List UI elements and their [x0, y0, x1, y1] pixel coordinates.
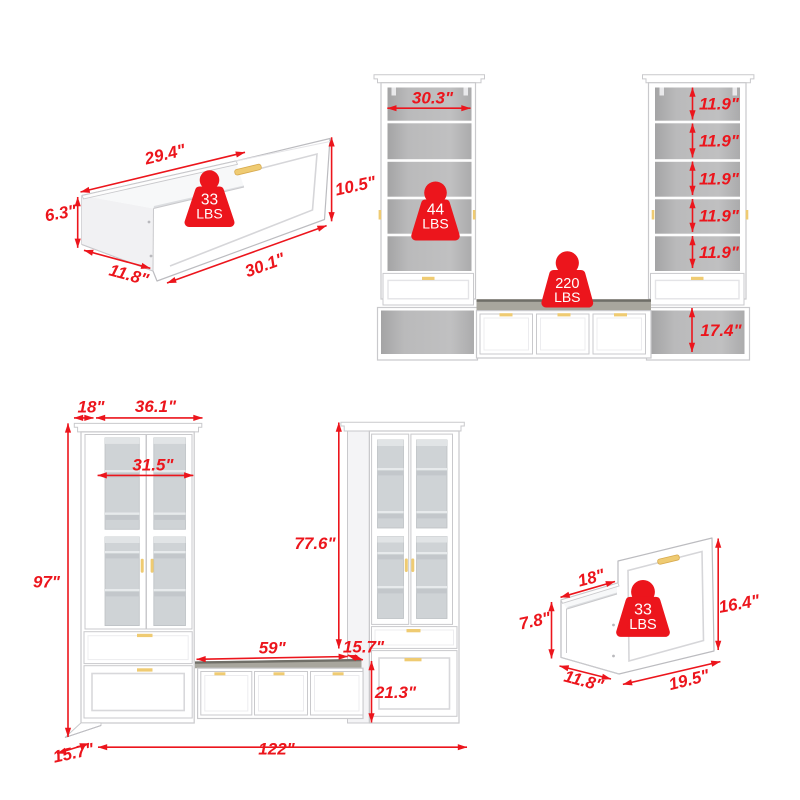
- svg-text:LBS: LBS: [422, 216, 448, 232]
- svg-text:LBS: LBS: [629, 617, 656, 633]
- svg-text:11.9": 11.9": [699, 95, 740, 114]
- svg-text:30.3": 30.3": [412, 89, 454, 108]
- svg-text:11.9": 11.9": [699, 243, 740, 262]
- svg-text:15.7": 15.7": [343, 638, 385, 657]
- svg-text:18": 18": [78, 398, 106, 417]
- svg-text:97": 97": [33, 573, 61, 592]
- svg-text:31.5": 31.5": [132, 456, 174, 475]
- svg-text:17.4": 17.4": [700, 321, 742, 340]
- svg-text:LBS: LBS: [554, 289, 580, 305]
- svg-text:11.9": 11.9": [699, 169, 740, 188]
- svg-text:11.9": 11.9": [699, 132, 740, 151]
- svg-text:LBS: LBS: [196, 205, 222, 221]
- svg-text:36.1": 36.1": [135, 397, 177, 416]
- svg-text:11.9": 11.9": [699, 207, 740, 226]
- svg-text:59": 59": [259, 638, 287, 657]
- svg-text:21.3": 21.3": [374, 683, 417, 702]
- svg-text:77.6": 77.6": [294, 534, 336, 553]
- svg-text:122": 122": [258, 739, 295, 758]
